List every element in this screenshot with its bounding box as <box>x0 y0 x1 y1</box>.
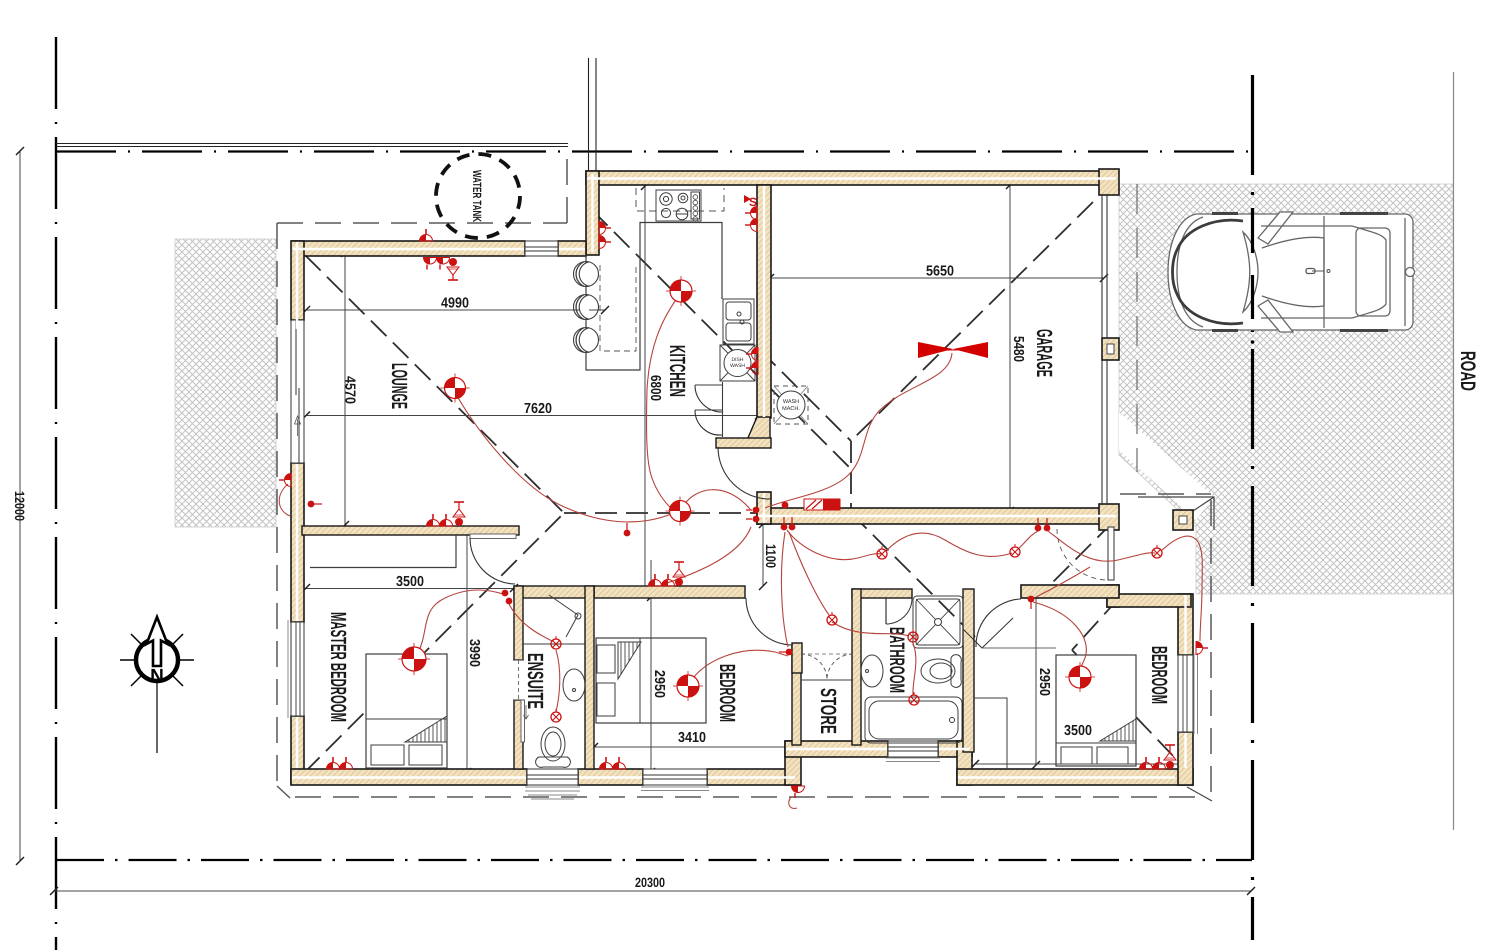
svg-text:MACH.: MACH. <box>782 406 800 412</box>
svg-text:WASH: WASH <box>730 363 745 369</box>
svg-text:5480: 5480 <box>1010 336 1026 362</box>
svg-text:5650: 5650 <box>926 264 954 280</box>
svg-text:BATHROOM: BATHROOM <box>885 627 908 693</box>
svg-text:3500: 3500 <box>396 574 424 590</box>
svg-text:2950: 2950 <box>651 670 667 698</box>
svg-text:GARAGE: GARAGE <box>1032 329 1057 377</box>
svg-text:BEDROOM: BEDROOM <box>1147 646 1172 704</box>
svg-text:20300: 20300 <box>635 875 665 890</box>
svg-text:KITCHEN: KITCHEN <box>665 345 690 397</box>
svg-text:3500: 3500 <box>1064 723 1092 739</box>
svg-text:N: N <box>150 666 164 687</box>
svg-text:7620: 7620 <box>524 401 552 417</box>
svg-text:MASTER BEDROOM: MASTER BEDROOM <box>326 612 351 722</box>
svg-text:4990: 4990 <box>441 296 469 312</box>
svg-text:3410: 3410 <box>678 730 706 746</box>
svg-text:6800: 6800 <box>647 375 663 401</box>
svg-text:ENSUITE: ENSUITE <box>523 653 548 709</box>
svg-text:3990: 3990 <box>466 639 482 667</box>
svg-text:2950: 2950 <box>1036 668 1052 696</box>
svg-text:LOUNGE: LOUNGE <box>387 363 412 409</box>
svg-text:STORE: STORE <box>816 688 841 734</box>
svg-text:BEDROOM: BEDROOM <box>715 664 740 722</box>
svg-text:S: S <box>749 195 757 209</box>
svg-text:WATER TANK: WATER TANK <box>470 170 484 222</box>
svg-text:4570: 4570 <box>342 376 358 404</box>
svg-text:1100: 1100 <box>763 544 779 568</box>
svg-text:WASH: WASH <box>783 399 799 405</box>
svg-text:ROAD: ROAD <box>1456 351 1479 391</box>
svg-text:12000: 12000 <box>12 491 27 521</box>
